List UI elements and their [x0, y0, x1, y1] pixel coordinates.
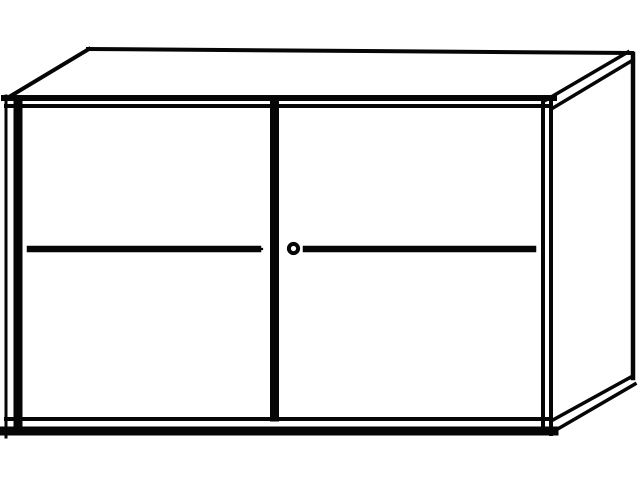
side-top-edge-inner — [553, 60, 633, 108]
product-illustration — [0, 0, 640, 480]
left-door-panel — [23, 106, 270, 417]
side-bottom-edge-outer — [551, 377, 631, 421]
cabinet-drawing — [0, 0, 640, 480]
right-door-panel — [279, 106, 541, 417]
side-bottom-edge-inner — [556, 384, 635, 430]
lock-icon — [289, 244, 298, 253]
side-top-edge-outer — [546, 52, 628, 100]
top-left-edge — [9, 49, 89, 97]
top-back-edge — [88, 49, 632, 53]
